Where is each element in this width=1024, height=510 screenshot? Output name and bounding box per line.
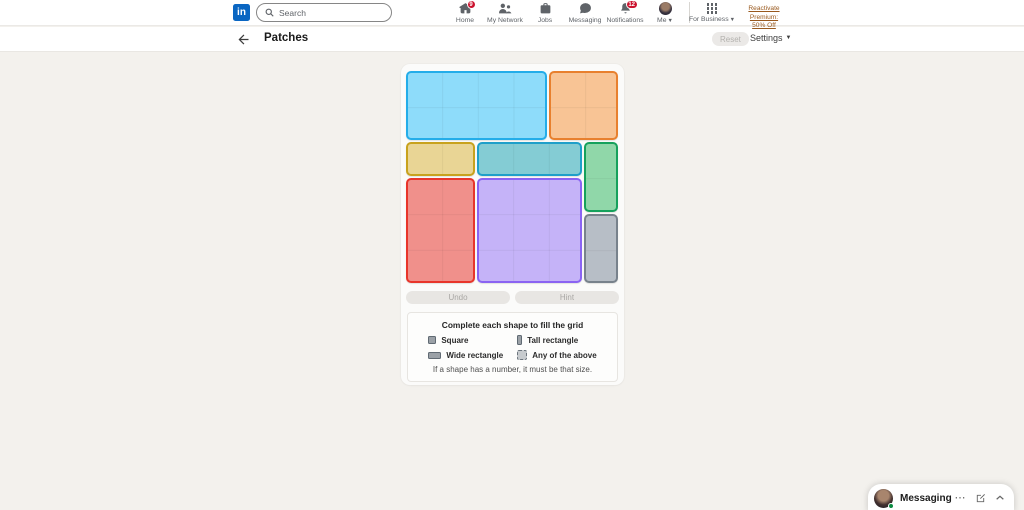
top-navigation-bar: in 9 Home My Network Jobs	[0, 0, 1024, 26]
online-status-dot	[888, 503, 894, 509]
patch-tan[interactable]	[406, 142, 475, 176]
nav-item-label: Me	[657, 17, 666, 24]
nav-item-label: Jobs	[538, 17, 552, 24]
nav-item-jobs[interactable]: Jobs	[525, 0, 565, 26]
reset-button[interactable]: Reset	[712, 32, 749, 46]
messaging-dock-label: Messaging	[900, 493, 955, 504]
patch-green[interactable]	[584, 142, 618, 211]
legend-item-label: Wide rectangle	[446, 351, 503, 360]
compose-message-icon[interactable]	[975, 493, 986, 504]
patch-orange[interactable]	[549, 71, 618, 140]
undo-button[interactable]: Undo	[406, 291, 510, 304]
bell-icon: 12	[619, 2, 632, 15]
me-avatar	[659, 2, 672, 15]
nav-item-label: My Network	[487, 17, 523, 24]
patch-gray[interactable]	[584, 214, 618, 283]
settings-label: Settings	[750, 33, 783, 43]
home-icon: 9	[459, 2, 472, 15]
nav-item-messaging[interactable]: Messaging	[565, 0, 605, 26]
for-business-menu[interactable]: For Business▼	[690, 0, 734, 26]
search-icon	[265, 4, 274, 22]
premium-line2: 50% Off	[734, 22, 794, 31]
search-input[interactable]	[279, 8, 379, 18]
settings-dropdown[interactable]: Settings ▼	[750, 33, 791, 43]
legend-item-label: Any of the above	[532, 351, 596, 360]
patch-blue[interactable]	[406, 71, 547, 140]
chat-bubble-icon	[579, 2, 592, 15]
nav-item-home[interactable]: 9 Home	[445, 0, 485, 26]
legend-item-tall-rectangle: Tall rectangle	[517, 335, 596, 345]
square-icon	[428, 336, 436, 344]
nav-item-label: Home	[456, 17, 474, 24]
apps-grid-icon	[707, 3, 718, 14]
nav-item-me[interactable]: Me▼	[645, 0, 685, 26]
hint-button[interactable]: Hint	[515, 291, 619, 304]
chevron-down-icon: ▼	[668, 18, 673, 24]
tall-rectangle-icon	[517, 335, 522, 345]
for-business-label: For Business	[689, 16, 729, 23]
back-button[interactable]	[236, 31, 252, 47]
legend-items: Square Tall rectangle Wide rectangle Any…	[408, 335, 617, 360]
any-shape-icon	[517, 350, 527, 360]
patch-teal[interactable]	[477, 142, 582, 176]
wide-rectangle-icon	[428, 352, 441, 359]
legend-item-wide-rectangle: Wide rectangle	[428, 350, 503, 360]
linkedin-logo[interactable]: in	[233, 4, 250, 21]
legend-item-any-shape: Any of the above	[517, 350, 596, 360]
home-badge: 9	[467, 0, 476, 9]
legend-title: Complete each shape to fill the grid	[408, 320, 617, 330]
chevron-down-icon: ▼	[786, 35, 792, 41]
legend-caption: If a shape has a number, it must be that…	[408, 365, 617, 374]
patch-red[interactable]	[406, 178, 475, 283]
game-header-bar: Patches Reset Settings ▼	[0, 27, 1024, 52]
nav-item-label: Messaging	[569, 17, 602, 24]
patch-purple[interactable]	[477, 178, 582, 283]
notifications-badge: 12	[626, 0, 638, 9]
nav-items: 9 Home My Network Jobs Messaging 12	[445, 0, 685, 26]
legend-item-square: Square	[428, 335, 503, 345]
legend-panel: Complete each shape to fill the grid Squ…	[407, 312, 618, 382]
briefcase-icon	[539, 2, 552, 15]
game-board	[405, 70, 619, 284]
premium-line1: Reactivate Premium:	[734, 5, 794, 22]
nav-item-notifications[interactable]: 12 Notifications	[605, 0, 645, 26]
page-title: Patches	[264, 32, 308, 44]
search-box[interactable]	[256, 3, 392, 22]
chevron-up-icon[interactable]	[995, 493, 1005, 503]
user-avatar	[874, 489, 893, 508]
premium-upsell-link[interactable]: Reactivate Premium: 50% Off	[734, 5, 794, 31]
nav-item-label: Notifications	[606, 17, 643, 24]
game-card: Undo Hint Complete each shape to fill th…	[401, 64, 624, 385]
messaging-dock[interactable]: Messaging ⋯	[868, 484, 1014, 510]
nav-item-my-network[interactable]: My Network	[485, 0, 525, 26]
my-network-icon	[498, 2, 512, 15]
legend-item-label: Tall rectangle	[527, 336, 578, 345]
legend-item-label: Square	[441, 336, 468, 345]
